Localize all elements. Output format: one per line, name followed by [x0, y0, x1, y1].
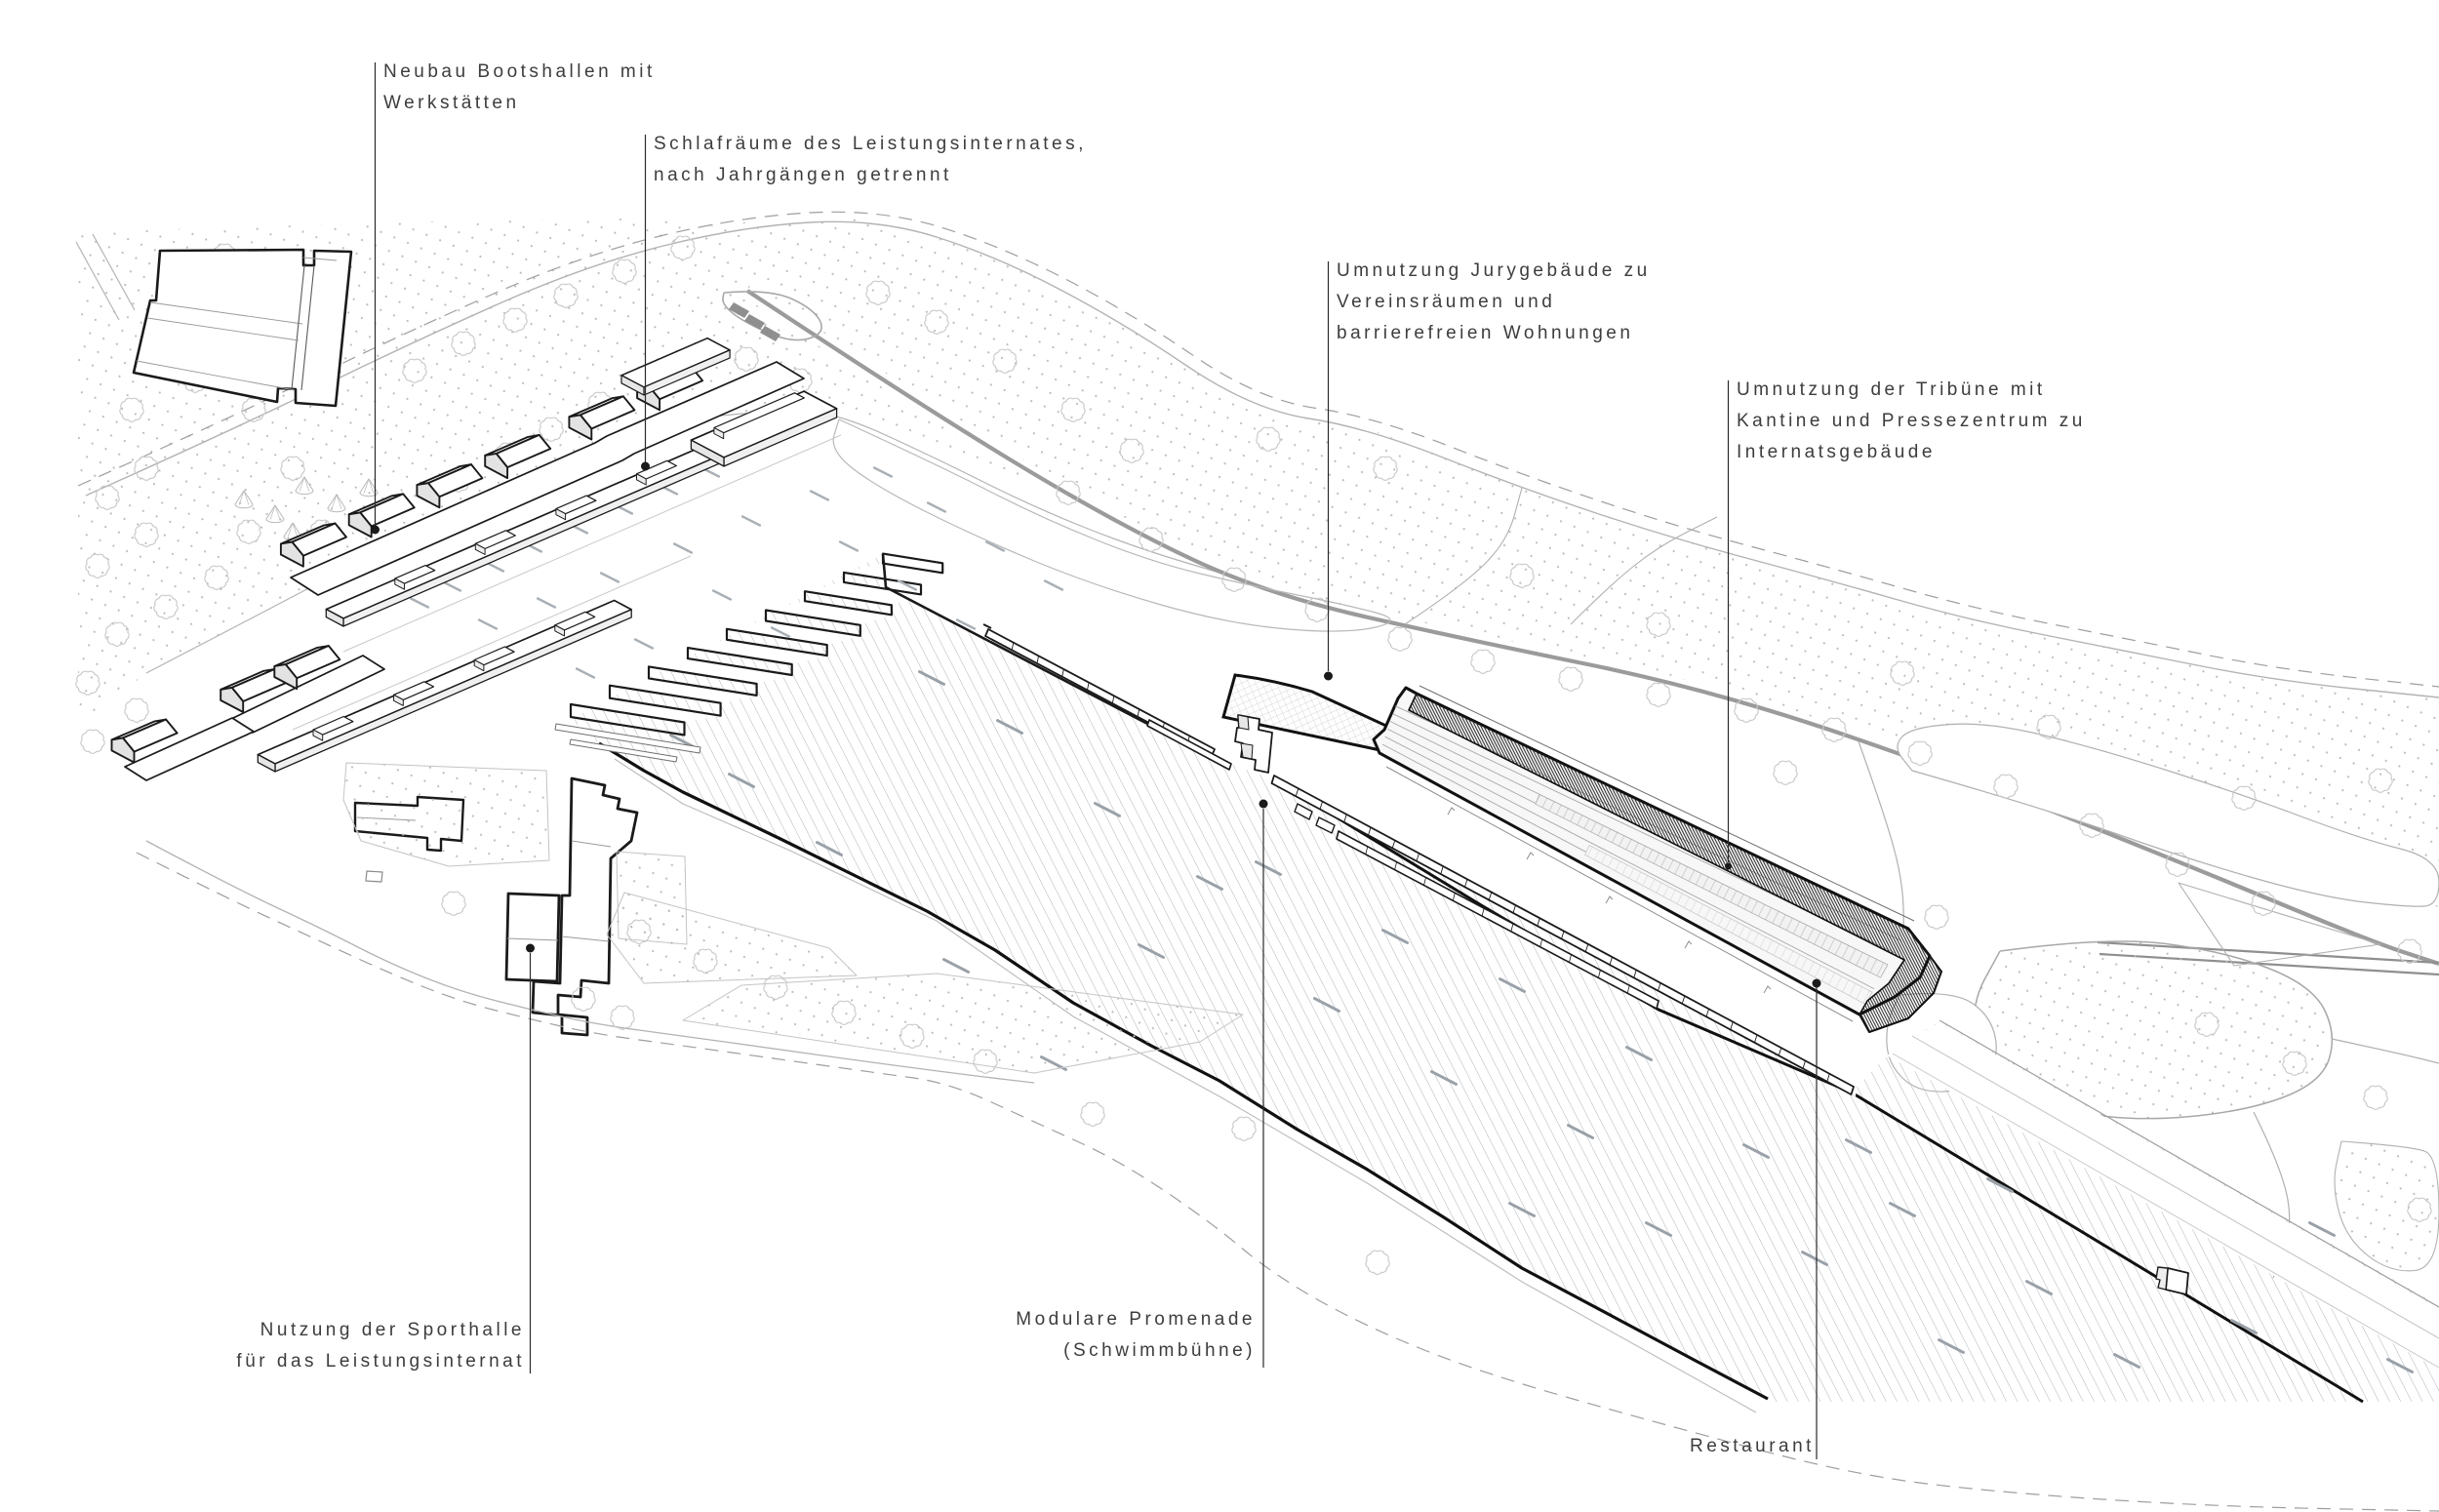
- svg-text:Restaurant: Restaurant: [1690, 1436, 1815, 1456]
